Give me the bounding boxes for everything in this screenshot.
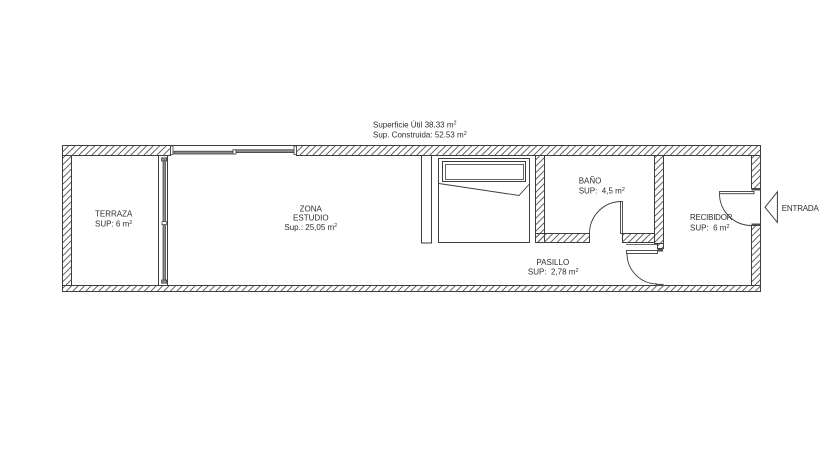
svg-text:SUP: 2,78 m2: SUP: 2,78 m2: [528, 268, 579, 277]
svg-text:Sup.: 25,05 m2: Sup.: 25,05 m2: [284, 223, 337, 232]
svg-text:SUP: 6 m2: SUP: 6 m2: [95, 220, 132, 229]
svg-text:TERRAZA: TERRAZA: [95, 210, 133, 219]
svg-text:Sup. Construida: 52.53 m2: Sup. Construida: 52.53 m2: [373, 131, 467, 140]
svg-text:Superficie Útil 38.33 m2: Superficie Útil 38.33 m2: [373, 121, 457, 130]
svg-text:SUP: 6 m2: SUP: 6 m2: [690, 224, 730, 233]
svg-text:ZONA: ZONA: [300, 205, 323, 214]
svg-text:SUP: 4,5 m2: SUP: 4,5 m2: [579, 187, 625, 196]
svg-text:ESTUDIO: ESTUDIO: [293, 214, 329, 223]
svg-text:BAÑO: BAÑO: [579, 177, 602, 186]
svg-text:ENTRADA: ENTRADA: [782, 204, 820, 213]
svg-text:PASILLO: PASILLO: [536, 258, 569, 267]
svg-text:RECIBIDOR: RECIBIDOR: [690, 213, 733, 222]
